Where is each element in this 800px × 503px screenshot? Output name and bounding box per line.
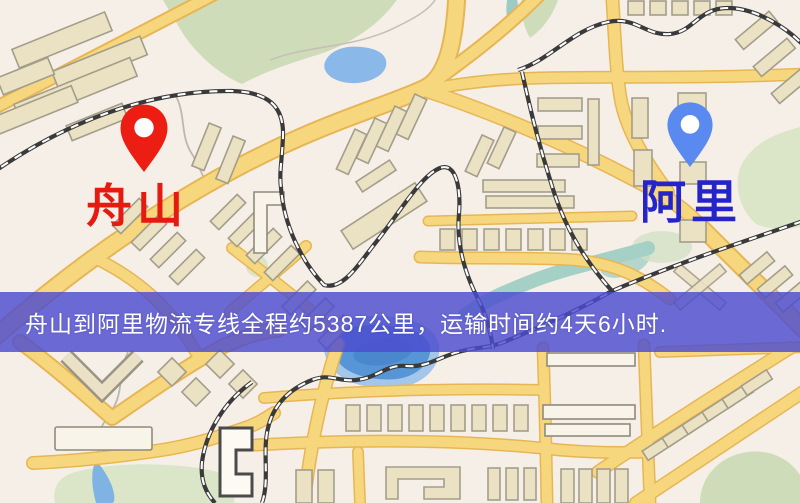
destination-pin-icon[interactable] [667, 102, 712, 167]
destination-label: 阿里 [640, 176, 742, 228]
map-viewport[interactable]: 舟山 阿里 舟山到阿里物流专线全程约5387公里，运输时间约4天6小时. [0, 0, 800, 503]
pond [324, 47, 386, 84]
route-banner-text: 舟山到阿里物流专线全程约5387公里，运输时间约4天6小时. [0, 305, 667, 339]
origin-label: 舟山 [86, 180, 188, 232]
route-banner: 舟山到阿里物流专线全程约5387公里，运输时间约4天6小时. [0, 292, 800, 352]
origin-pin-icon[interactable] [121, 105, 168, 172]
map-canvas[interactable]: 舟山 阿里 [0, 0, 800, 503]
